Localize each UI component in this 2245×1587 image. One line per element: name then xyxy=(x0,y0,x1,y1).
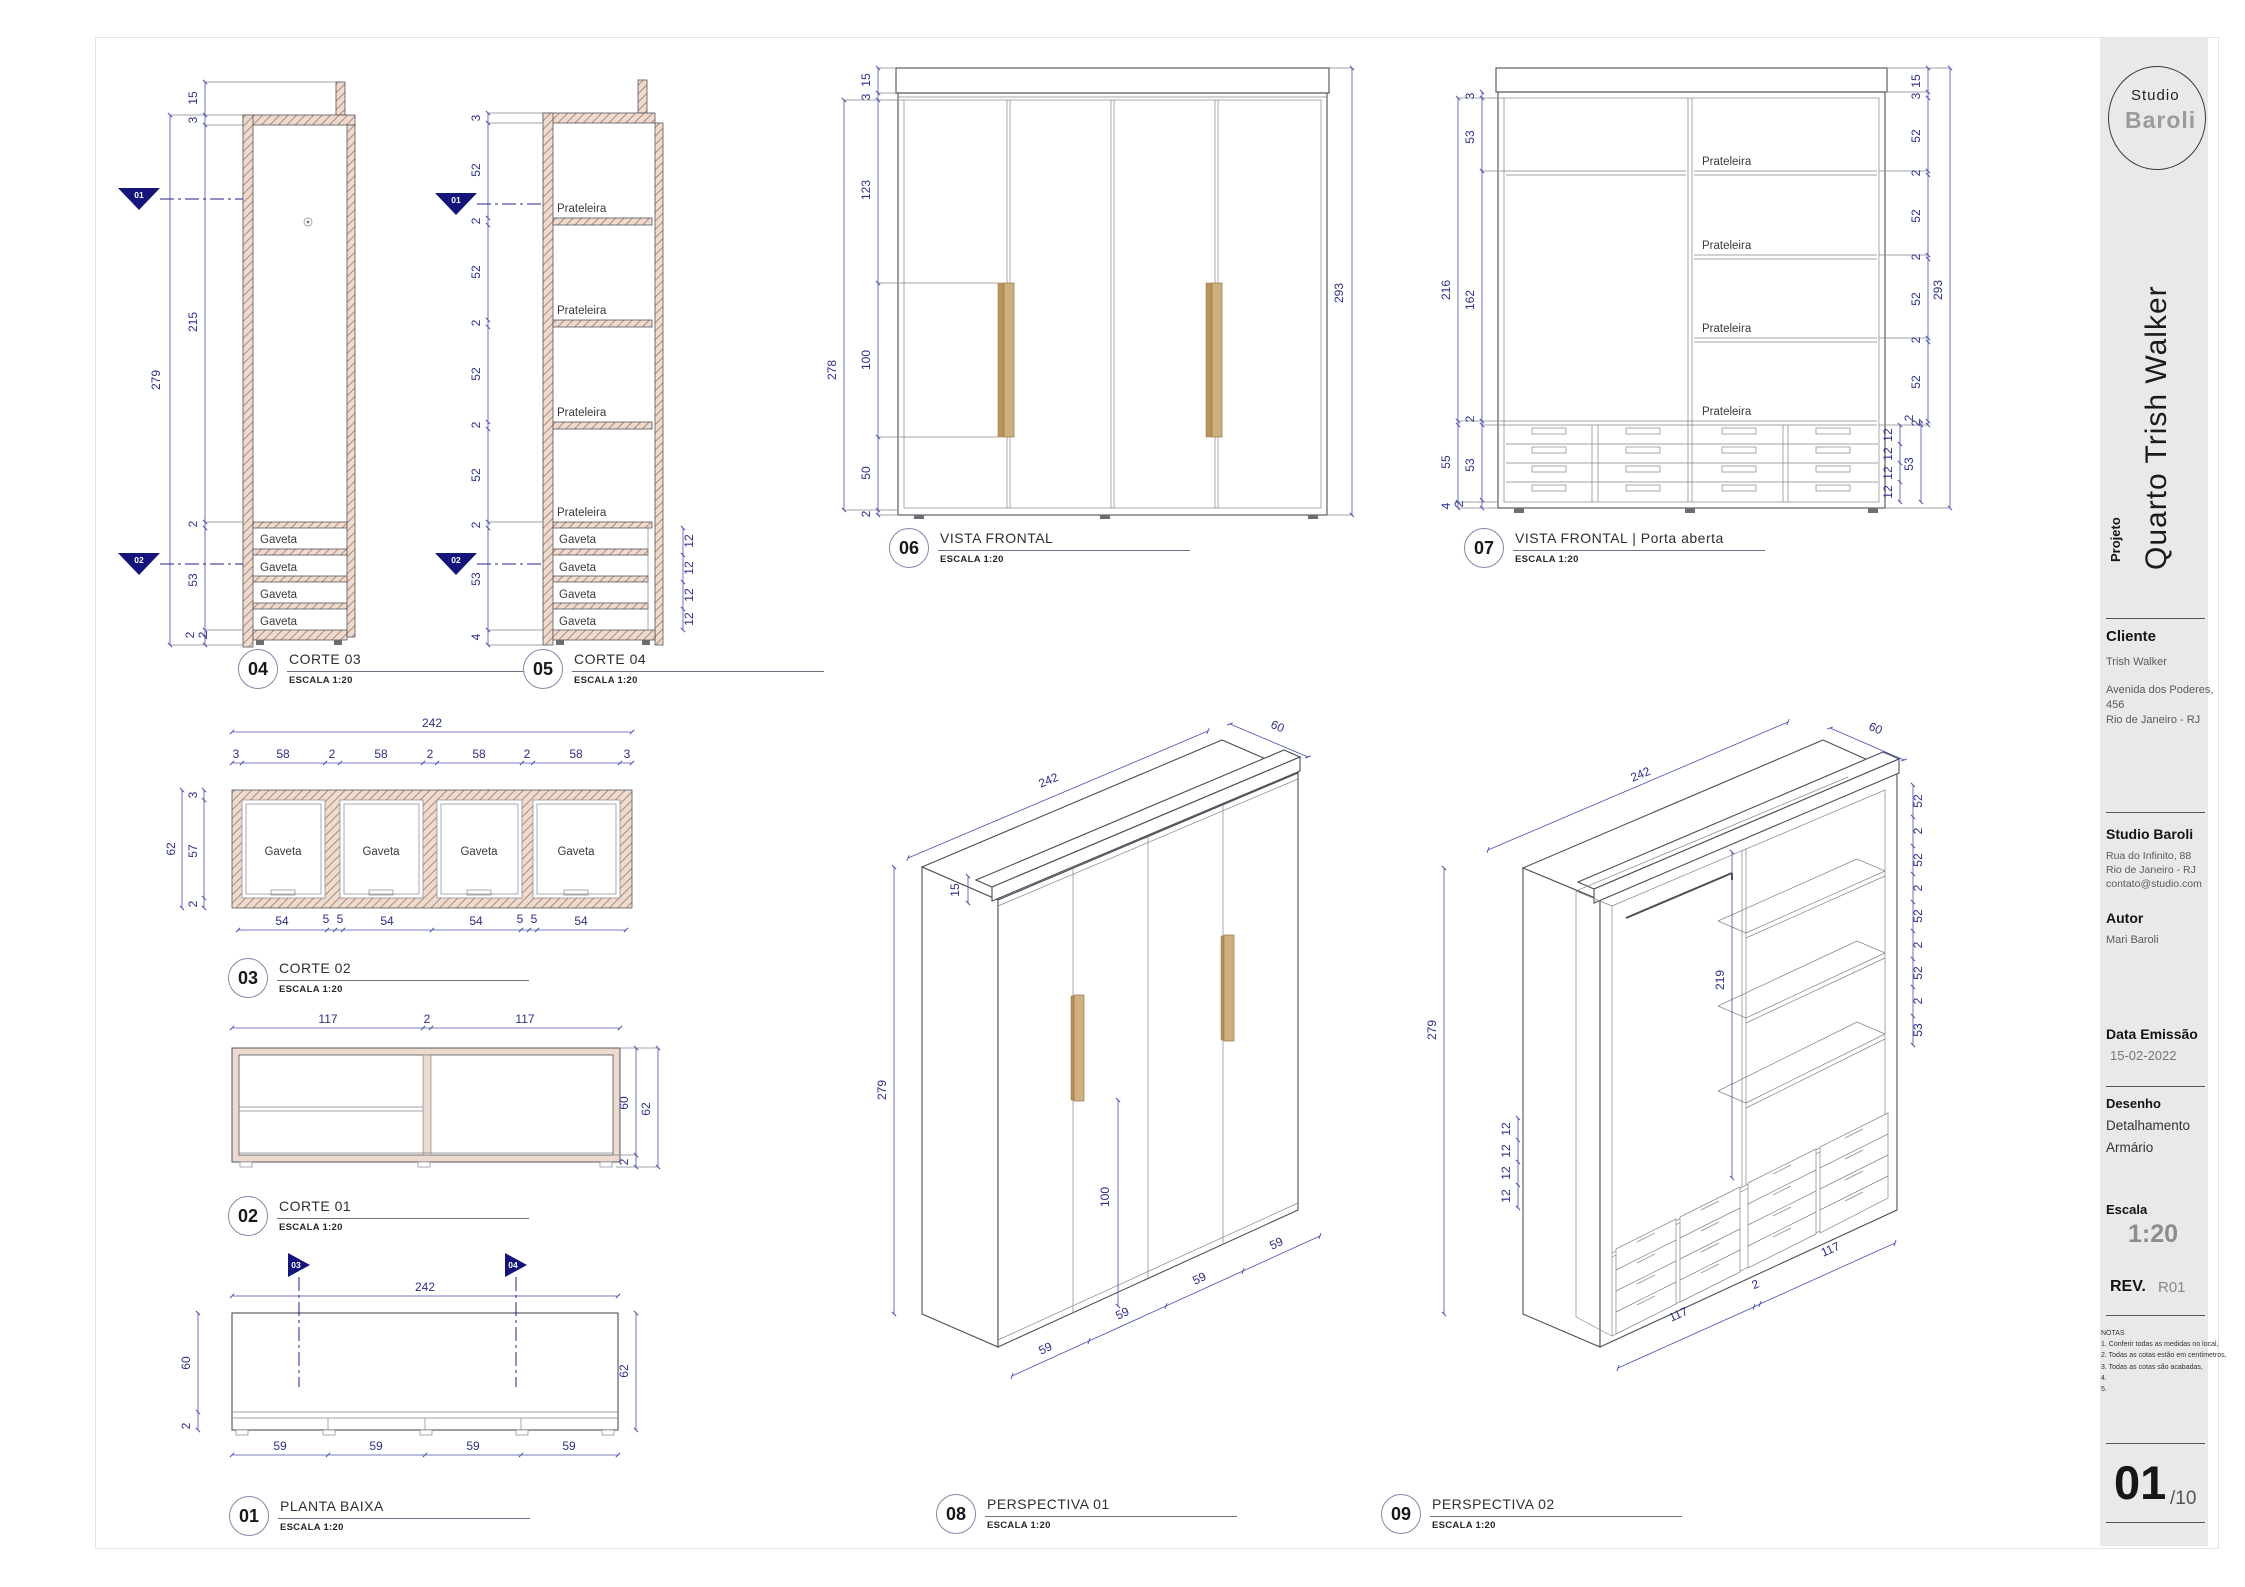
cliente-address-2: 456 xyxy=(2106,699,2124,711)
tb-divider xyxy=(2106,1315,2205,1316)
section-marker: 03 xyxy=(291,1260,301,1270)
vista-frontal-cabinet xyxy=(896,68,1329,519)
drawer-label: Gaveta xyxy=(260,534,298,546)
autor-value: Mari Baroli xyxy=(2106,934,2159,946)
shelf-label: Prateleira xyxy=(557,203,607,215)
drawer-label: Gaveta xyxy=(557,846,595,858)
vista-frontal-aberta-drawing: Prateleira Prateleira Prateleira Pratele… xyxy=(1430,40,2070,680)
corte01-cabinet xyxy=(232,1048,620,1167)
dim-label: 12 xyxy=(1881,466,1895,480)
dim-label: 53 xyxy=(1463,458,1477,472)
view-number: 07 xyxy=(1464,528,1504,568)
view-number: 05 xyxy=(523,649,563,689)
dim-label: 2 xyxy=(1749,1276,1761,1292)
dim-label: 52 xyxy=(1909,292,1923,306)
dim-label: 3 xyxy=(1463,92,1477,99)
dim-label: 59 xyxy=(273,1439,287,1453)
dim-label: 2 xyxy=(196,631,210,638)
dim-label: 52 xyxy=(469,265,483,279)
view-number: 08 xyxy=(936,1494,976,1534)
dim-label: 2 xyxy=(617,1158,631,1165)
dim-label: 2 xyxy=(469,217,483,224)
tb-divider xyxy=(2106,1086,2205,1087)
dim-label: 50 xyxy=(859,466,873,480)
dim-label: 3 xyxy=(469,114,483,121)
desenho-label: Desenho xyxy=(2106,1096,2161,1111)
section-marker: 02 xyxy=(134,555,144,565)
tb-divider xyxy=(2106,618,2205,619)
dim-label: 117 xyxy=(318,1012,337,1026)
dim-label: 4 xyxy=(469,633,483,640)
dim-label: 15 xyxy=(1909,74,1923,88)
dim-label: 52 xyxy=(1911,853,1925,867)
dim-label: 2 xyxy=(424,1012,431,1026)
dim-label: 53 xyxy=(186,573,200,587)
studio-address-2: Rio de Janeiro - RJ xyxy=(2106,864,2196,876)
dim-label: 12 xyxy=(1881,447,1895,461)
drawing-sheet: Gaveta Gaveta Gaveta Gaveta 279 15 3 215… xyxy=(0,0,2245,1587)
dim-label: 242 xyxy=(422,716,442,730)
dim-label: 52 xyxy=(1911,909,1925,923)
shelf-label: Prateleira xyxy=(557,407,607,419)
dim-label: 216 xyxy=(1439,280,1453,300)
corte-04-drawing: Prateleira Prateleira Prateleira Pratele… xyxy=(430,60,750,710)
escala-value: 1:20 xyxy=(2128,1220,2178,1249)
dim-label: 60 xyxy=(1867,719,1885,737)
vista-frontal-drawing: 15 3 123 100 50 2 278 293 xyxy=(830,40,1410,680)
desenho-line1: Detalhamento xyxy=(2106,1118,2190,1133)
dim-label: 2 xyxy=(469,319,483,326)
dim-label: 219 xyxy=(1713,970,1727,990)
dim-label: 60 xyxy=(617,1096,631,1110)
drawer-label: Gaveta xyxy=(264,846,302,858)
dim-label: 12 xyxy=(682,588,696,602)
dim-label: 2 xyxy=(1911,997,1925,1004)
persp2-cabinet xyxy=(1523,740,1899,1347)
perspectiva-02-drawing: 242 60 279 219 52 2 52 2 52 2 52 2 53 12… xyxy=(1380,700,2080,1580)
dim-label: 59 xyxy=(1036,1339,1054,1357)
dim-label: 2 xyxy=(1909,253,1923,260)
view-corte-04: Prateleira Prateleira Prateleira Pratele… xyxy=(430,60,750,710)
dim-label: 52 xyxy=(1911,794,1925,808)
dim-label: 52 xyxy=(1909,375,1923,389)
dim-label: 2 xyxy=(1911,884,1925,891)
dim-label: 5 xyxy=(323,912,330,926)
view-title: CORTE 01 xyxy=(277,1196,529,1219)
escala-label: Escala xyxy=(2106,1202,2147,1217)
dim-label: 162 xyxy=(1463,290,1477,310)
desenho-line2: Armário xyxy=(2106,1140,2153,1155)
dim-label: 12 xyxy=(682,534,696,548)
dim-label: 59 xyxy=(369,1439,383,1453)
nota-line: 5. xyxy=(2101,1384,2227,1395)
dim-label: 2 xyxy=(1463,415,1477,422)
shelf-label: Prateleira xyxy=(1702,240,1752,252)
view-scale: ESCALA 1:20 xyxy=(1513,551,1765,565)
dim-label: 2 xyxy=(1909,169,1923,176)
dim-label: 2 xyxy=(859,510,873,517)
cliente-name: Trish Walker xyxy=(2106,656,2167,668)
dim-label: 2 xyxy=(427,747,434,761)
corte03-cabinet: Gaveta Gaveta Gaveta Gaveta xyxy=(243,82,355,647)
dim-label: 58 xyxy=(276,747,290,761)
view-title: CORTE 02 xyxy=(277,958,529,981)
drawer-label: Gaveta xyxy=(362,846,400,858)
view-scale: ESCALA 1:20 xyxy=(985,1517,1237,1531)
dim-label: 2 xyxy=(1902,414,1916,421)
view-title: VISTA FRONTAL | Porta aberta xyxy=(1513,528,1765,551)
dim-label: 242 xyxy=(1036,770,1060,791)
drawer-label: Gaveta xyxy=(559,616,597,628)
logo-text-top: Studio xyxy=(2131,87,2180,104)
drawer-label: Gaveta xyxy=(559,562,597,574)
section-marker: 04 xyxy=(508,1260,518,1270)
dim-label: 52 xyxy=(1909,129,1923,143)
dim-label: 59 xyxy=(1267,1234,1285,1252)
dim-label: 53 xyxy=(1902,457,1916,471)
drawer-label: Gaveta xyxy=(559,589,597,601)
view-number: 04 xyxy=(238,649,278,689)
notas-title: NOTAS xyxy=(2101,1328,2227,1339)
dim-label: 2 xyxy=(1911,941,1925,948)
label-perspectiva-01: 08 PERSPECTIVA 01 ESCALA 1:20 xyxy=(936,1494,1237,1534)
dim-label: 52 xyxy=(1909,209,1923,223)
shelf-label: Prateleira xyxy=(1702,156,1752,168)
dim-label: 5 xyxy=(337,912,344,926)
dim-label: 54 xyxy=(469,914,483,928)
dim-label: 278 xyxy=(825,360,839,380)
nota-line: 1. Conferir todas as medidas no local, xyxy=(2101,1339,2227,1350)
dim-label: 293 xyxy=(1332,283,1346,303)
studio-baroli-logo: Studio Baroli xyxy=(2108,66,2206,170)
dim-label: 215 xyxy=(186,312,200,332)
nota-line: 3. Todas as cotas são acabadas, xyxy=(2101,1362,2227,1373)
dim-label: 52 xyxy=(469,163,483,177)
dim-label: 53 xyxy=(1911,1023,1925,1037)
shelf-label: Prateleira xyxy=(1702,406,1752,418)
dim-label: 15 xyxy=(186,91,200,105)
corte04-section-markers: 01 02 xyxy=(435,193,543,575)
page-total: /10 xyxy=(2170,1488,2196,1510)
dim-label: 2 xyxy=(469,421,483,428)
dim-label: 59 xyxy=(1113,1304,1131,1322)
view-vista-frontal: 15 3 123 100 50 2 278 293 xyxy=(830,40,1410,680)
persp1-cabinet xyxy=(922,740,1300,1347)
corte04-cabinet: Prateleira Prateleira Prateleira Pratele… xyxy=(543,80,663,645)
corte-03-drawing: Gaveta Gaveta Gaveta Gaveta 279 15 3 215… xyxy=(110,60,430,710)
vista-aberta-cabinet: Prateleira Prateleira Prateleira Pratele… xyxy=(1496,68,1887,513)
label-corte-03: 04 CORTE 03 ESCALA 1:20 xyxy=(238,649,539,689)
shelf-label: Prateleira xyxy=(557,507,607,519)
label-corte-02: 03 CORTE 02 ESCALA 1:20 xyxy=(228,958,529,998)
label-planta-baixa: 01 PLANTA BAIXA ESCALA 1:20 xyxy=(229,1496,530,1536)
dim-label: 58 xyxy=(569,747,583,761)
section-marker: 01 xyxy=(134,190,144,200)
logo-text-bottom: Baroli xyxy=(2125,107,2196,134)
dim-label: 2 xyxy=(183,631,197,638)
view-scale: ESCALA 1:20 xyxy=(938,551,1190,565)
rev-value: R01 xyxy=(2158,1279,2186,1296)
dim-label: 5 xyxy=(531,912,538,926)
drawer-label: Gaveta xyxy=(260,589,298,601)
corte03-section-markers: 01 02 xyxy=(118,188,243,575)
dim-label: 279 xyxy=(1425,1020,1439,1040)
view-number: 01 xyxy=(229,1496,269,1536)
planta-cabinet xyxy=(232,1313,618,1435)
notas-block: NOTAS 1. Conferir todas as medidas no lo… xyxy=(2101,1328,2227,1395)
label-vista-frontal: 06 VISTA FRONTAL ESCALA 1:20 xyxy=(889,528,1190,568)
dim-label: 242 xyxy=(415,1280,435,1294)
view-title: PERSPECTIVA 01 xyxy=(985,1494,1237,1517)
view-title: VISTA FRONTAL xyxy=(938,528,1190,551)
dim-label: 3 xyxy=(859,93,873,100)
dim-label: 5 xyxy=(517,912,524,926)
projeto-value: Quarto Trish Walker xyxy=(2140,170,2174,570)
dim-label: 59 xyxy=(562,1439,576,1453)
view-number: 06 xyxy=(889,528,929,568)
view-scale: ESCALA 1:20 xyxy=(278,1519,530,1533)
dim-label: 3 xyxy=(624,747,631,761)
dim-label: 58 xyxy=(472,747,486,761)
dim-label: 54 xyxy=(275,914,289,928)
nota-line: 2. Todas as cotas estão em centímetros, xyxy=(2101,1350,2227,1361)
drawer-label: Gaveta xyxy=(260,616,298,628)
dim-label: 62 xyxy=(164,842,178,856)
drawer-label: Gaveta xyxy=(559,534,597,546)
dim-label: 58 xyxy=(374,747,388,761)
dim-label: 52 xyxy=(1911,966,1925,980)
dim-label: 4 xyxy=(1439,502,1453,509)
dim-label: 3 xyxy=(233,747,240,761)
dim-label: 12 xyxy=(1499,1166,1513,1180)
view-number: 03 xyxy=(228,958,268,998)
view-scale: ESCALA 1:20 xyxy=(1430,1517,1682,1531)
dim-label: 60 xyxy=(179,1356,193,1370)
vista-aberta-dimensions: 3 53 162 2 53 2 216 55 4 15 3 52 2 52 2 … xyxy=(1439,68,1950,509)
view-perspectiva-02: 242 60 279 219 52 2 52 2 52 2 52 2 53 12… xyxy=(1380,700,2080,1580)
dim-label: 2 xyxy=(329,747,336,761)
section-marker: 01 xyxy=(451,195,461,205)
view-title: PLANTA BAIXA xyxy=(278,1496,530,1519)
view-scale: ESCALA 1:20 xyxy=(287,672,539,686)
dim-label: 2 xyxy=(179,1422,193,1429)
view-corte-03: Gaveta Gaveta Gaveta Gaveta 279 15 3 215… xyxy=(110,60,430,710)
dim-label: 54 xyxy=(574,914,588,928)
tb-divider xyxy=(2106,1443,2205,1444)
dim-label: 12 xyxy=(1499,1189,1513,1203)
dim-label: 2 xyxy=(524,747,531,761)
dim-label: 123 xyxy=(859,180,873,200)
shelf-label: Prateleira xyxy=(557,305,607,317)
dim-label: 100 xyxy=(1098,1187,1112,1207)
cliente-address-1: Avenida dos Poderes, xyxy=(2106,684,2213,696)
dim-label: 55 xyxy=(1439,455,1453,469)
corte02-cabinet: Gaveta Gaveta Gaveta Gaveta xyxy=(232,790,632,908)
dim-label: 293 xyxy=(1931,280,1945,300)
dim-label: 279 xyxy=(875,1080,889,1100)
dim-label: 2 xyxy=(1909,336,1923,343)
dim-label: 12 xyxy=(1881,428,1895,442)
projeto-label: Projeto xyxy=(2108,470,2123,562)
view-scale: ESCALA 1:20 xyxy=(572,672,824,686)
dim-label: 2 xyxy=(186,900,200,907)
view-title: CORTE 04 xyxy=(572,649,824,672)
dim-label: 2 xyxy=(1452,500,1466,507)
drawer-label: Gaveta xyxy=(460,846,498,858)
studio-name: Studio Baroli xyxy=(2106,826,2193,842)
dim-label: 62 xyxy=(639,1102,653,1116)
dim-label: 100 xyxy=(859,350,873,370)
dim-label: 53 xyxy=(1463,130,1477,144)
dim-label: 57 xyxy=(186,844,200,858)
view-vista-frontal-aberta: Prateleira Prateleira Prateleira Pratele… xyxy=(1430,40,2070,680)
shelf-label: Prateleira xyxy=(1702,323,1752,335)
dim-label: 2 xyxy=(186,520,200,527)
dim-label: 3 xyxy=(1909,92,1923,99)
tb-divider xyxy=(2106,812,2205,813)
label-corte-01: 02 CORTE 01 ESCALA 1:20 xyxy=(228,1196,529,1236)
page-number: 01 xyxy=(2114,1455,2166,1510)
data-emissao-label: Data Emissão xyxy=(2106,1026,2198,1042)
label-corte-04: 05 CORTE 04 ESCALA 1:20 xyxy=(523,649,824,689)
dim-label: 2 xyxy=(469,521,483,528)
dim-label: 60 xyxy=(1269,717,1287,735)
view-title: CORTE 03 xyxy=(287,649,539,672)
drawer-label: Gaveta xyxy=(260,562,298,574)
view-scale: ESCALA 1:20 xyxy=(277,981,529,995)
view-number: 02 xyxy=(228,1196,268,1236)
dim-label: 12 xyxy=(682,612,696,626)
cliente-address-3: Rio de Janeiro - RJ xyxy=(2106,714,2200,726)
view-number: 09 xyxy=(1381,1494,1421,1534)
label-vista-frontal-aberta: 07 VISTA FRONTAL | Porta aberta ESCALA 1… xyxy=(1464,528,1765,568)
label-perspectiva-02: 09 PERSPECTIVA 02 ESCALA 1:20 xyxy=(1381,1494,1682,1534)
dim-label: 52 xyxy=(469,367,483,381)
dim-label: 54 xyxy=(380,914,394,928)
tb-divider xyxy=(2106,1522,2205,1523)
dim-label: 53 xyxy=(469,572,483,586)
dim-label: 15 xyxy=(859,73,873,87)
dim-label: 52 xyxy=(469,468,483,482)
dim-label: 12 xyxy=(1881,485,1895,499)
nota-line: 4. xyxy=(2101,1373,2227,1384)
view-scale: ESCALA 1:20 xyxy=(277,1219,529,1233)
dim-label: 117 xyxy=(515,1012,534,1026)
dim-label: 59 xyxy=(466,1439,480,1453)
dim-label: 62 xyxy=(617,1364,631,1378)
dim-label: 15 xyxy=(948,883,962,897)
studio-address-1: Rua do Infinito, 88 xyxy=(2106,850,2191,862)
studio-email: contato@studio.com xyxy=(2106,878,2202,890)
dim-label: 12 xyxy=(682,561,696,575)
data-emissao-value: 15-02-2022 xyxy=(2110,1048,2177,1063)
view-title: PERSPECTIVA 02 xyxy=(1430,1494,1682,1517)
dim-label: 2 xyxy=(1911,827,1925,834)
rev-label: REV. xyxy=(2110,1278,2146,1296)
cliente-label: Cliente xyxy=(2106,628,2156,645)
dim-label: 3 xyxy=(186,116,200,123)
dim-label: 3 xyxy=(186,791,200,798)
section-marker: 02 xyxy=(451,555,461,565)
dim-label: 12 xyxy=(1499,1122,1513,1136)
dim-label: 12 xyxy=(1499,1144,1513,1158)
dim-label: 279 xyxy=(149,370,163,390)
autor-label: Autor xyxy=(2106,910,2143,926)
dim-label: 59 xyxy=(1190,1269,1208,1287)
